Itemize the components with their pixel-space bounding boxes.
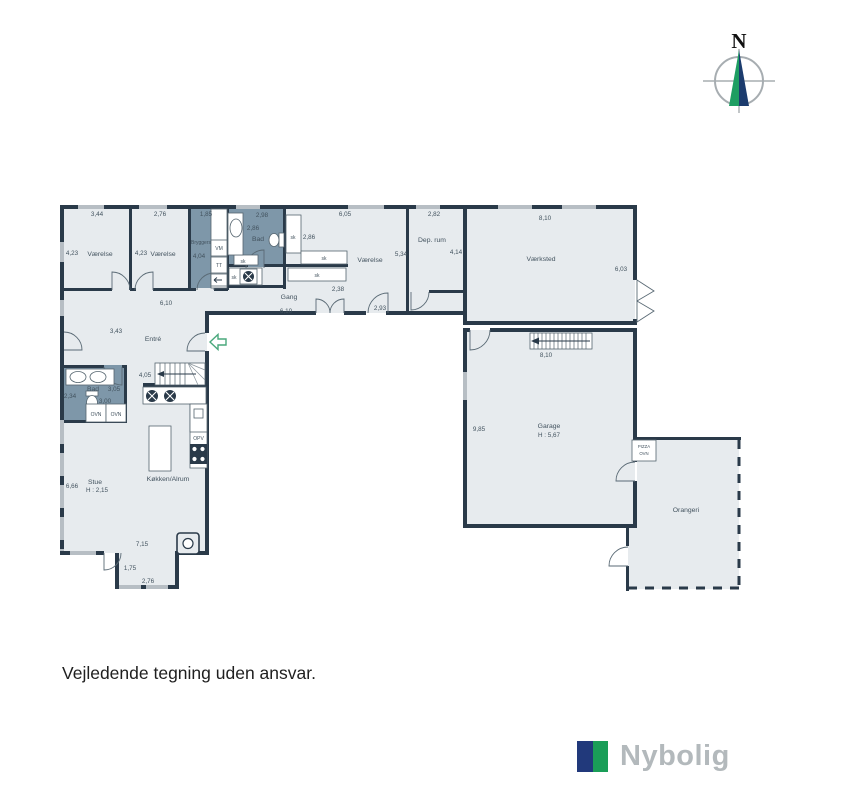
- dim: 2,93: [374, 305, 387, 312]
- dim: 2,34: [64, 393, 77, 400]
- dim: 2,86: [247, 225, 260, 232]
- dim: 3,00: [99, 398, 112, 405]
- dim: 6,10: [280, 308, 293, 315]
- floorplan-page: 3,44 4,23 Værelse 2,76 4,23 Værelse 1,85…: [0, 0, 847, 800]
- dim: 6,05: [339, 211, 352, 218]
- room-label-garage: Garage: [538, 423, 561, 430]
- door-vaerksted-leaf1: [637, 280, 654, 301]
- stairs-entre: [155, 363, 205, 385]
- dim: 5,34: [395, 251, 408, 258]
- orangeri-floor: [628, 439, 739, 589]
- door-orangeri: [609, 547, 628, 566]
- dishwasher-label: OPV: [193, 436, 204, 442]
- dim: 6,66: [66, 483, 79, 490]
- closet-label: sk: [232, 275, 238, 281]
- bad2-sink1-icon: [70, 372, 86, 383]
- pizza-oven-label-2: OVN: [639, 451, 648, 456]
- dim: 2,98: [256, 212, 269, 219]
- nybolig-logo: Nybolig: [577, 740, 730, 773]
- dim: 3,44: [91, 211, 104, 218]
- closet-label: sk: [315, 273, 321, 279]
- dim: 9,85: [473, 426, 486, 433]
- nybolig-logo-icon: [577, 741, 608, 772]
- room-label-dep-rum: Dep. rum: [418, 237, 446, 244]
- dim: 8,10: [539, 215, 552, 222]
- room-label-vaerelse3: Værelse: [357, 257, 383, 264]
- dryer-label: TT: [216, 263, 222, 269]
- room-label-bryggers: Bryggers: [191, 240, 212, 246]
- room-label-bad1: Bad: [252, 236, 264, 243]
- stairs-garage: [530, 333, 592, 349]
- dim: 4,14: [450, 249, 463, 256]
- dim: 2,86: [303, 234, 316, 241]
- bad1-sink-icon: [230, 219, 242, 237]
- dim: 4,23: [66, 250, 79, 257]
- dim: 6,10: [160, 300, 173, 307]
- closet-label: sk: [322, 256, 328, 262]
- dim: 8,10: [540, 352, 553, 359]
- room-label-entre: Entré: [145, 336, 161, 343]
- dim: 2,38: [332, 286, 345, 293]
- dim: 4,05: [139, 372, 152, 379]
- dim: 4,23: [135, 250, 148, 257]
- dim: 1,75: [124, 565, 137, 572]
- room-label-bad2: Bad: [87, 386, 99, 393]
- entrance-arrow-icon: [210, 335, 226, 350]
- room-label-vaerelse1: Værelse: [87, 251, 113, 258]
- room-label-vaerksted: Værksted: [526, 256, 555, 263]
- room-label-koekken: Køkken/Alrum: [147, 476, 190, 483]
- dim: H : 5,67: [538, 432, 561, 439]
- stove-icon: [190, 444, 207, 464]
- bad2-sink2-icon: [90, 372, 106, 383]
- dim: 3,05: [108, 386, 121, 393]
- wood-stove-icon: [183, 539, 193, 549]
- closet-vertical: [286, 215, 301, 253]
- closet-bad1: [234, 255, 258, 265]
- room-label-orangeri: Orangeri: [673, 507, 700, 514]
- vaerksted-floor: [465, 207, 635, 323]
- dim: 2,76: [142, 578, 155, 585]
- nybolig-logo-text: Nybolig: [620, 740, 730, 773]
- dim: 3,43: [110, 328, 123, 335]
- dim: 1,85: [200, 211, 213, 218]
- closet-label: sk: [241, 259, 247, 265]
- washing-machine-label: VM: [215, 246, 223, 252]
- dim: H : 2,15: [86, 487, 109, 494]
- bad1-toilet-icon: [269, 234, 279, 247]
- dim: 4,04: [193, 253, 206, 260]
- dim: 6,03: [615, 266, 628, 273]
- oven2-label: OVN: [111, 412, 122, 418]
- closet-label: sk: [291, 235, 297, 241]
- disclaimer-text: Vejledende tegning uden ansvar.: [62, 663, 316, 684]
- kitchen-island: [149, 426, 171, 471]
- dim: 2,76: [154, 211, 167, 218]
- compass: N: [703, 29, 775, 113]
- pizza-oven-label-1: PIZZA: [638, 444, 650, 449]
- oven1-label: OVN: [91, 412, 102, 418]
- dim: 7,15: [136, 541, 149, 548]
- dim: 2,82: [428, 211, 441, 218]
- door-vaerksted-leaf2: [637, 301, 654, 322]
- room-label-stue: Stue: [88, 479, 102, 486]
- room-label-gang: Gang: [281, 294, 298, 301]
- room-label-vaerelse2: Værelse: [150, 251, 176, 258]
